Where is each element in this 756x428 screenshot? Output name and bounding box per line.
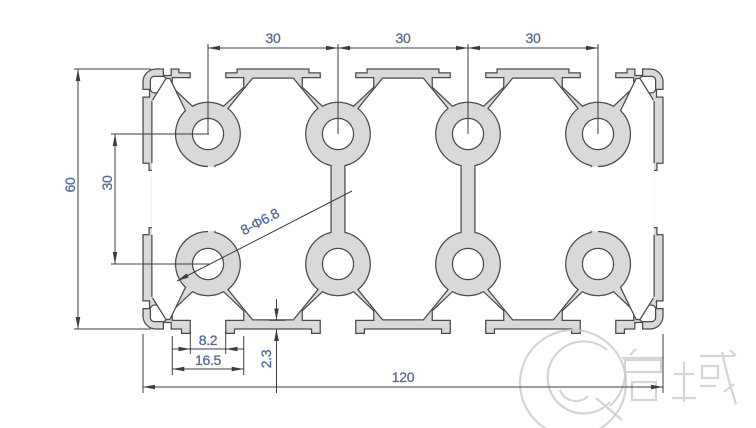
dim-top-spacing-3: 30 bbox=[526, 30, 541, 46]
profile-cross-section bbox=[143, 69, 663, 333]
logo-q-swirl-icon bbox=[548, 341, 622, 420]
dim-hole-row-spacing: 30 bbox=[99, 175, 115, 190]
dim-overall-height: 60 bbox=[62, 177, 78, 192]
logo-character-yu bbox=[672, 350, 736, 404]
brand-watermark-logo bbox=[520, 330, 736, 428]
dim-lip-thickness: 2.3 bbox=[258, 349, 274, 368]
dim-slot-inner-width: 16.5 bbox=[195, 352, 222, 368]
dim-slot-opening: 8.2 bbox=[199, 332, 218, 348]
dim-overall-width: 120 bbox=[392, 369, 415, 385]
dim-top-spacing-2: 30 bbox=[396, 30, 411, 46]
logo-circle bbox=[520, 330, 626, 428]
dim-top-spacing-1: 30 bbox=[266, 30, 281, 46]
profile-drawing: 30 30 30 60 30 8-Φ6.8 8.2 16.5 2.3 120 bbox=[0, 0, 756, 428]
technical-drawing-page: 30 30 30 60 30 8-Φ6.8 8.2 16.5 2.3 120 bbox=[0, 0, 756, 428]
logo-character-qi bbox=[610, 349, 664, 406]
